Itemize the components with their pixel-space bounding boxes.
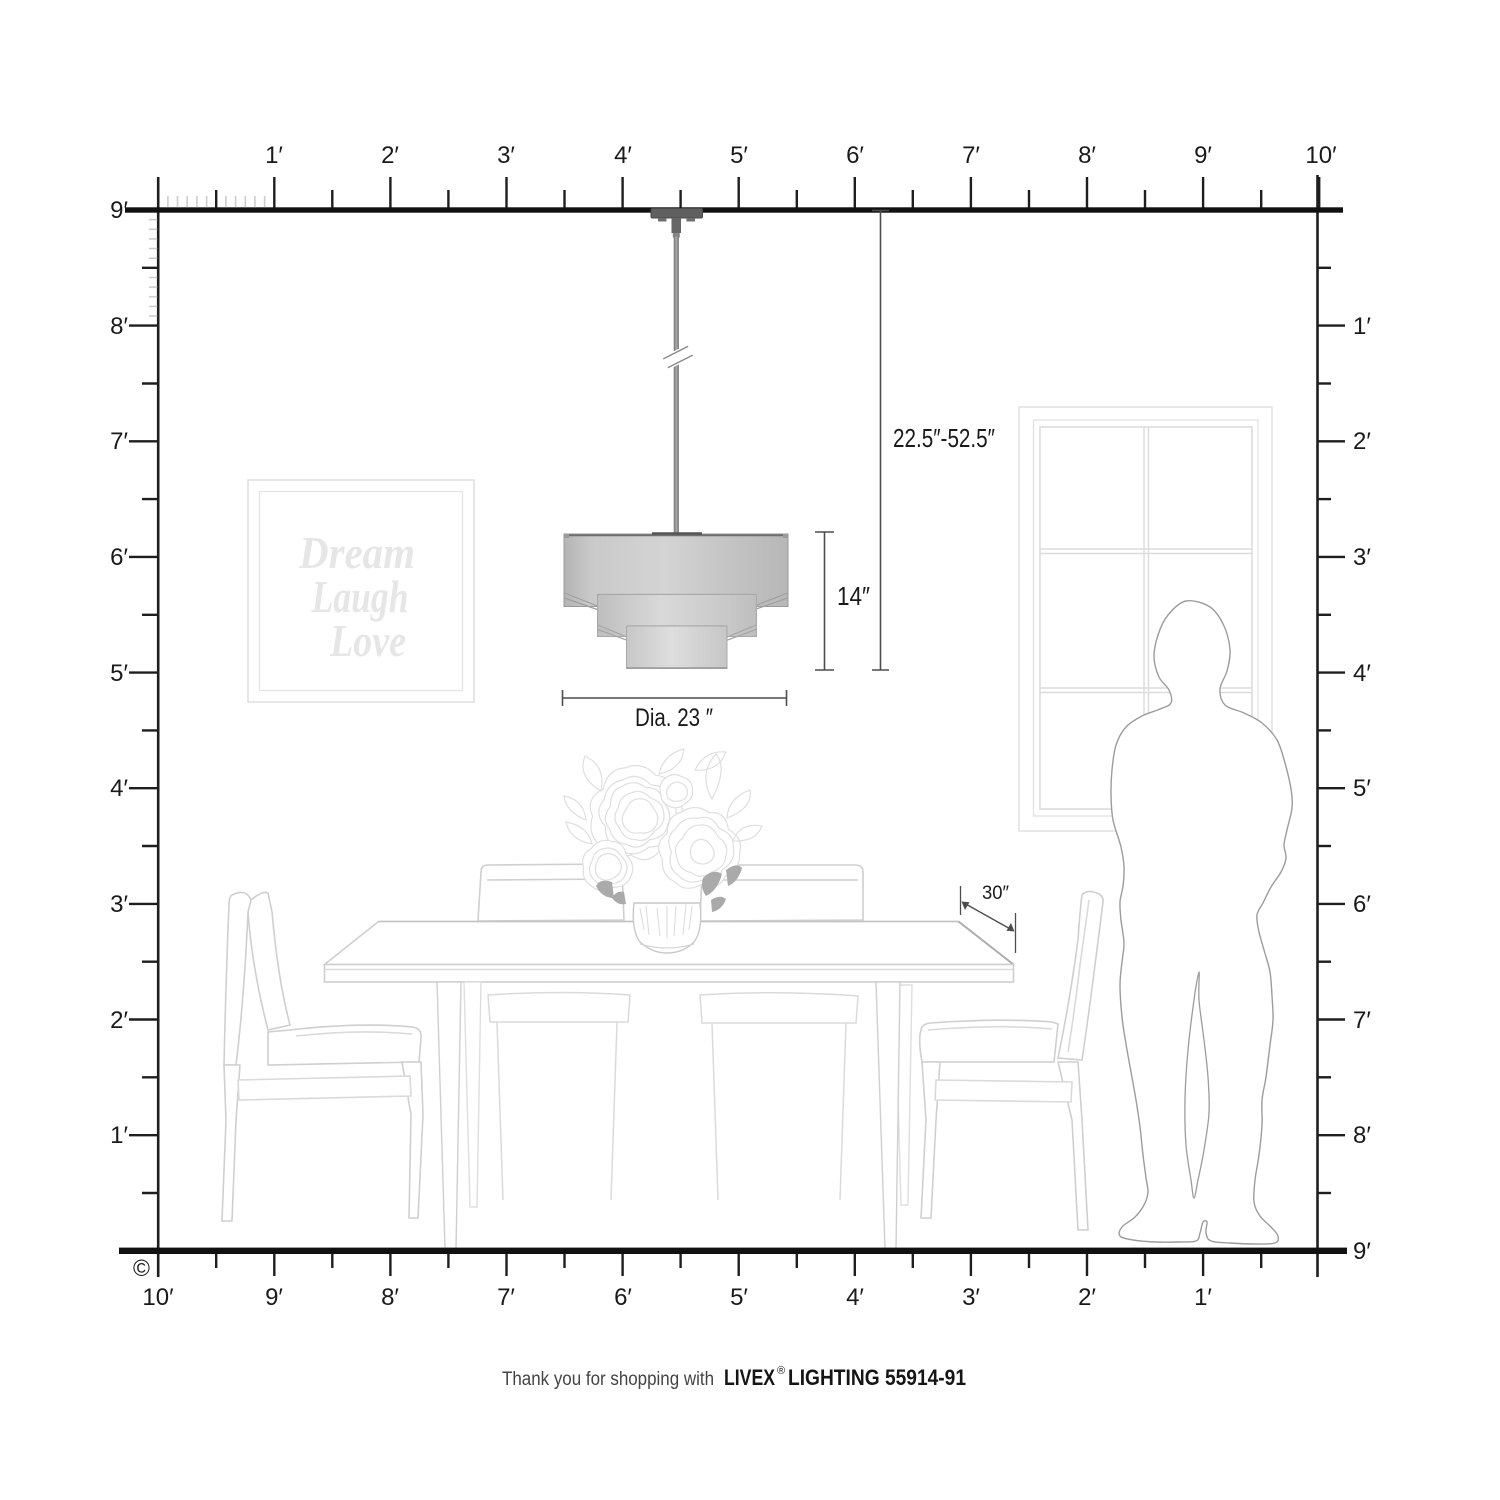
svg-text:14″: 14″ xyxy=(837,581,870,611)
svg-text:Thank you for shopping with: Thank you for shopping with xyxy=(502,1369,714,1390)
svg-text:5′: 5′ xyxy=(730,1284,748,1311)
svg-text:7′: 7′ xyxy=(962,142,980,169)
svg-text:4′: 4′ xyxy=(110,775,128,802)
svg-text:6′: 6′ xyxy=(110,544,128,571)
svg-text:8′: 8′ xyxy=(110,313,128,340)
svg-text:1′: 1′ xyxy=(1194,1284,1212,1311)
svg-text:6′: 6′ xyxy=(1353,891,1371,918)
svg-text:4′: 4′ xyxy=(1353,660,1371,687)
svg-text:2′: 2′ xyxy=(1078,1284,1096,1311)
svg-text:3′: 3′ xyxy=(962,1284,980,1311)
svg-text:1′: 1′ xyxy=(1353,313,1371,340)
svg-text:3′: 3′ xyxy=(497,142,515,169)
svg-text:5′: 5′ xyxy=(110,660,128,687)
svg-text:3′: 3′ xyxy=(1353,544,1371,571)
svg-text:2′: 2′ xyxy=(381,142,399,169)
svg-text:1′: 1′ xyxy=(110,1122,128,1149)
svg-text:30″: 30″ xyxy=(982,883,1009,904)
svg-text:7′: 7′ xyxy=(1353,1007,1371,1034)
svg-text:5′: 5′ xyxy=(730,142,748,169)
svg-text:6′: 6′ xyxy=(846,142,864,169)
svg-text:®: ® xyxy=(777,1365,785,1377)
svg-text:8′: 8′ xyxy=(1078,142,1096,169)
svg-text:8′: 8′ xyxy=(1353,1122,1371,1149)
svg-text:©: © xyxy=(133,1255,150,1281)
svg-text:9′: 9′ xyxy=(1353,1238,1371,1265)
svg-text:2′: 2′ xyxy=(110,1007,128,1034)
svg-text:22.5″-52.5″: 22.5″-52.5″ xyxy=(893,423,995,453)
svg-text:7′: 7′ xyxy=(110,428,128,455)
svg-text:LIVEX: LIVEX xyxy=(724,1365,775,1390)
svg-text:9′: 9′ xyxy=(1194,142,1212,169)
svg-text:1′: 1′ xyxy=(265,142,283,169)
svg-text:6′: 6′ xyxy=(614,1284,632,1311)
svg-text:8′: 8′ xyxy=(381,1284,399,1311)
svg-text:7′: 7′ xyxy=(497,1284,515,1311)
svg-text:9′: 9′ xyxy=(265,1284,283,1311)
svg-text:10′: 10′ xyxy=(1305,142,1337,169)
svg-text:4′: 4′ xyxy=(614,142,632,169)
svg-text:10′: 10′ xyxy=(142,1284,174,1311)
svg-text:9′: 9′ xyxy=(110,197,128,224)
svg-text:2′: 2′ xyxy=(1353,428,1371,455)
svg-text:LIGHTING 55914-91: LIGHTING 55914-91 xyxy=(788,1365,966,1390)
svg-text:Love: Love xyxy=(329,615,406,666)
svg-text:4′: 4′ xyxy=(846,1284,864,1311)
svg-text:3′: 3′ xyxy=(110,891,128,918)
svg-text:5′: 5′ xyxy=(1353,775,1371,802)
svg-text:Dia. 23 ″: Dia. 23 ″ xyxy=(635,704,713,732)
